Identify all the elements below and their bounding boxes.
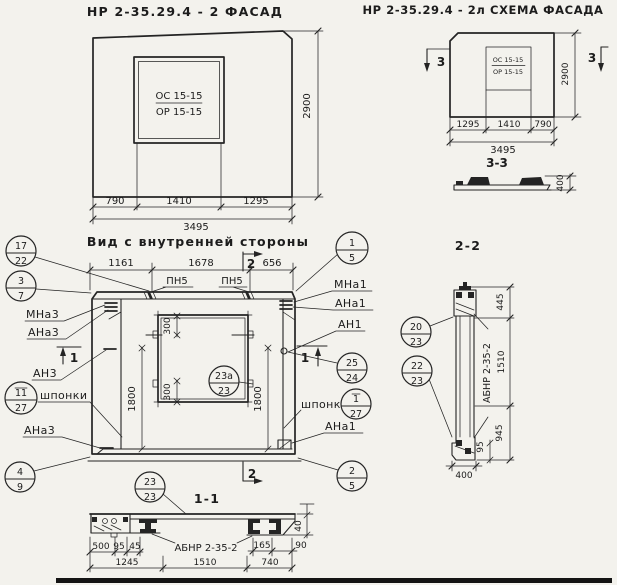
dim-740: 740 (261, 558, 278, 568)
drawing-canvas: НР 2-35.29.4 - 2 ФАСАД ОС 15-15 ОР 15-15… (0, 0, 617, 585)
joint-hatch (468, 292, 474, 298)
pn5-label-left: ПН5 (166, 276, 187, 287)
label-shponki-left: шпонки (40, 389, 87, 402)
inner-dim-656: 656 (262, 258, 281, 269)
inner-dim-300-bottom: 300 (163, 383, 173, 400)
callout-23a-23: 23а 23 (209, 366, 239, 397)
block-hatch (123, 517, 128, 522)
svg-text:1: 1 (70, 351, 78, 365)
svg-text:23: 23 (218, 386, 230, 397)
dim-445: 445 (496, 293, 506, 310)
anchor-hook-icon (281, 348, 287, 354)
anchor-marks (100, 349, 116, 448)
svg-text:11: 11 (15, 388, 27, 399)
arrowhead-up-icon (315, 347, 321, 356)
callout-11-27: 11 27 (5, 382, 37, 414)
svg-text:27: 27 (15, 403, 27, 414)
label-ana1: АНа1 (335, 297, 366, 310)
svg-text:3: 3 (18, 276, 24, 287)
beam-mark-label: АБНР 2-35-2 (482, 343, 493, 403)
section-3-3-block (467, 177, 490, 185)
facade-view: НР 2-35.29.4 - 2 ФАСАД ОС 15-15 ОР 15-15… (87, 4, 323, 233)
corner-detail (279, 440, 291, 449)
svg-text:23: 23 (144, 492, 156, 503)
section-3-3-view: 3-3 400 (454, 156, 576, 193)
inner-dim-1678: 1678 (188, 258, 213, 269)
callout-23-23: 23 23 (135, 472, 165, 503)
schema-dim-right: 790 (534, 120, 551, 130)
block-hatch (92, 517, 97, 522)
label-ana3-bottom: АНа3 (24, 424, 55, 437)
arrowhead-down-icon (598, 63, 604, 72)
label-mna1: МНа1 (334, 278, 367, 291)
block-hatch-lines (94, 525, 121, 531)
callout-leader (163, 494, 186, 514)
svg-text:2: 2 (248, 467, 256, 481)
schema-dim-total: 3495 (490, 145, 515, 156)
section-1-1-view: 23 23 1-1 АБНР 2- (87, 472, 314, 572)
svg-text:1: 1 (353, 394, 359, 405)
rebar-icon (103, 519, 108, 524)
svg-text:22: 22 (15, 256, 27, 267)
bottom-joint-box (452, 437, 475, 460)
scan-edge-band (56, 578, 612, 583)
section-2-2-title: 2-2 (455, 238, 481, 253)
callout-2-5: 2 5 (337, 461, 367, 492)
callout-leaders (429, 317, 453, 437)
inner-panel-outline (92, 292, 295, 454)
lifting-loop-icon (245, 292, 251, 299)
top-anchor-detail (459, 282, 471, 290)
dim-165: 165 (253, 541, 270, 551)
label-ana3: АНа3 (28, 326, 59, 339)
joint-hatch-lines (455, 446, 474, 453)
inner-dim-1161: 1161 (108, 258, 133, 269)
inner-panel (88, 292, 301, 461)
facade-window-mark-bottom: ОР 15-15 (156, 107, 202, 118)
panel-edge-outer (456, 316, 474, 437)
svg-text:22: 22 (411, 361, 423, 372)
leader-line (284, 410, 301, 428)
label-an3: АН3 (33, 367, 57, 380)
svg-text:5: 5 (349, 481, 355, 492)
svg-text:23: 23 (410, 337, 422, 348)
facade-dim-right: 1295 (243, 196, 268, 207)
embedded-beam-2 (248, 519, 260, 534)
section-3-3-base (454, 185, 551, 190)
section-1-1-title: 1-1 (194, 491, 220, 506)
inner-dim-1800-left: 1800 (127, 386, 138, 411)
dim-500: 500 (92, 542, 109, 552)
embedded-beam-3 (269, 519, 281, 534)
dim-90: 90 (295, 541, 307, 551)
anchor-marks (105, 301, 292, 311)
block-hook (111, 533, 117, 537)
rebar-icon (112, 519, 117, 524)
dimension-lines (93, 31, 318, 219)
facade-dim-mid: 1410 (166, 196, 191, 207)
svg-text:7: 7 (18, 291, 24, 302)
dim-945: 945 (495, 424, 505, 441)
section-2-2-view: 2-2 20 23 22 23 АБНР 2-35-2 4 (401, 238, 514, 481)
facade-title: НР 2-35.29.4 - 2 ФАСАД (87, 4, 283, 19)
arrowhead-up-icon (60, 347, 66, 356)
facade-window-mark-top: ОС 15-15 (155, 91, 202, 102)
callout-1-27: 1 27 (341, 389, 371, 420)
schema-title: НР 2-35.29.4 - 2л СХЕМА ФАСАДА (362, 3, 603, 17)
section2-mark-top: 2 (243, 251, 263, 271)
facade-dim-height: 2900 (302, 93, 313, 118)
inner-view: Вид с внутренней стороны 1161 1678 656 2… (5, 232, 373, 493)
schema-view: НР 2-35.29.4 - 2л СХЕМА ФАСАДА ОС 15-15 … (362, 3, 608, 156)
svg-text:23а: 23а (215, 371, 233, 382)
section2-mark-bottom: 2 (243, 462, 263, 484)
arrowhead-down-icon (424, 63, 430, 72)
callout-22-23: 22 23 (402, 356, 432, 387)
corner-gussets (109, 312, 295, 320)
svg-text:9: 9 (17, 482, 23, 493)
svg-text:25: 25 (346, 358, 358, 369)
section-3-3-height: 400 (556, 174, 566, 191)
dim-1245: 1245 (116, 558, 139, 568)
left-block (91, 514, 130, 533)
inner-panel-lines (88, 299, 301, 461)
extension-lines (93, 31, 323, 224)
pn5-label-right: ПН5 (221, 276, 242, 287)
label-ana1-bottom: АНа1 (325, 420, 356, 433)
svg-text:24: 24 (346, 373, 358, 384)
dim-45: 45 (129, 542, 140, 552)
svg-text:23: 23 (411, 376, 423, 387)
section1-mark-right: 1 (297, 346, 327, 366)
callout-4-9: 4 9 (5, 462, 35, 493)
facade-dim-total: 3495 (183, 222, 208, 233)
label-mna3: МНа3 (26, 308, 59, 321)
svg-text:5: 5 (349, 253, 355, 264)
callout-1-5: 1 5 (336, 232, 368, 264)
schema-window-mark-top: ОС 15-15 (493, 56, 524, 64)
joint-hatch (456, 440, 462, 446)
arrowhead-right-icon (254, 251, 263, 257)
dim-400: 400 (455, 471, 472, 481)
svg-text:20: 20 (410, 322, 422, 333)
lifting-loop-icon (147, 292, 153, 299)
scanned-drawing-sheet: НР 2-35.29.4 - 2 ФАСАД ОС 15-15 ОР 15-15… (0, 0, 617, 585)
schema-dim-mid: 1410 (498, 120, 521, 130)
leader-line (288, 331, 365, 352)
svg-text:1: 1 (349, 238, 355, 249)
section1-mark-left: 1 (57, 347, 81, 365)
schema-dim-height: 2900 (561, 62, 571, 85)
svg-text:2: 2 (247, 257, 255, 271)
dim-1510: 1510 (194, 558, 217, 568)
section-3-3-block (519, 177, 544, 185)
panel-edge-inner (460, 316, 470, 437)
section-3-3-step (456, 181, 463, 185)
dim-1510: 1510 (497, 350, 507, 373)
embedded-beam-1 (139, 519, 157, 533)
svg-text:1: 1 (301, 351, 309, 365)
leader-line (152, 534, 252, 543)
facade-dim-left: 790 (105, 196, 124, 207)
inner-title: Вид с внутренней стороны (87, 234, 309, 249)
dim-40: 40 (294, 520, 304, 532)
callout-3-7: 3 7 (6, 271, 36, 302)
schema-window-mark-bottom: ОР 15-15 (493, 68, 523, 76)
section-3-3-title: 3-3 (486, 156, 508, 170)
callout-20-23: 20 23 (401, 317, 431, 348)
inner-dim-300-top: 300 (163, 317, 173, 334)
dim-95: 95 (113, 542, 124, 552)
svg-text:17: 17 (15, 241, 27, 252)
label-an1: АН1 (338, 318, 362, 331)
svg-text:2: 2 (349, 466, 355, 477)
joint-hatch (456, 292, 462, 298)
section3-mark-right: 3 (588, 51, 596, 65)
joint-hatch-lines (456, 303, 474, 316)
svg-text:4: 4 (17, 467, 23, 478)
dim-95: 95 (476, 441, 486, 452)
svg-text:27: 27 (350, 409, 362, 420)
slab-lines (91, 514, 295, 535)
inner-dim-1800-right: 1800 (253, 386, 264, 411)
section3-mark-left: 3 (437, 55, 445, 69)
leader-line (23, 437, 100, 448)
beam-mark-label: АБНР 2-35-2 (174, 543, 237, 554)
callout-25-24: 25 24 (337, 353, 367, 384)
svg-text:23: 23 (144, 477, 156, 488)
leader-line (292, 433, 363, 443)
schema-dim-left: 1295 (457, 120, 480, 130)
callout-17-22: 17 22 (6, 236, 36, 267)
